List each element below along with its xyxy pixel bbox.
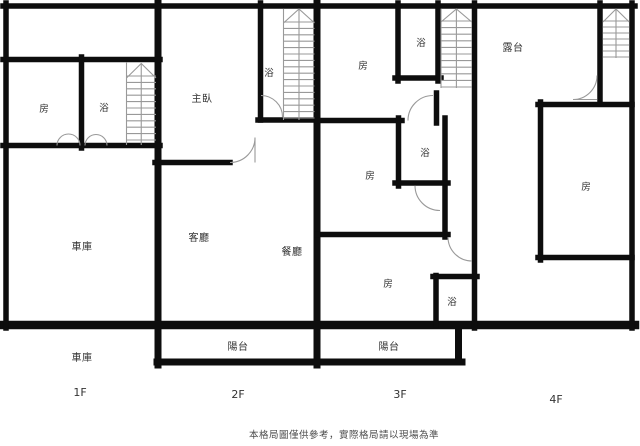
room-label-3f-room2: 房 [365,170,375,182]
room-label-2f-living: 客廳 [189,231,210,244]
inner-walls-1f [3,57,160,148]
floor-plan-drawing: 房 浴 車庫 主臥 浴 客廳 餐廳 陽台 房 浴 房 浴 房 浴 陽台 露台 房… [0,0,640,446]
door-arc [448,237,472,261]
room-label-3f-room1: 房 [358,60,368,72]
room-label-4f-room: 房 [581,181,591,193]
door-arc [261,96,283,118]
floor-plan: 房 浴 車庫 主臥 浴 客廳 餐廳 陽台 房 浴 房 浴 房 浴 陽台 露台 房… [0,0,640,446]
disclaimer-text: 本格局圖僅供參考，實際格局請以現場為準 [249,429,439,441]
inner-walls-4f [538,3,632,260]
balcony-walls [157,327,462,362]
caption-2f: 2F [231,388,244,401]
inner-walls-2f [155,3,317,163]
room-label-3f-bath2: 浴 [420,148,430,159]
door-arc [408,95,433,120]
room-label-3f-bath3: 浴 [447,297,457,308]
room-label-1f-bath: 浴 [99,103,109,114]
room-label-3f-bath1: 浴 [416,38,426,49]
room-label-2f-dining: 餐廳 [282,245,303,258]
caption-1f: 1F [73,386,86,399]
room-label-1f-garage: 車庫 [72,240,93,253]
room-label-3f-balcony: 陽台 [379,340,400,353]
room-label-2f-bath: 浴 [264,68,274,79]
room-label-1f-bedroom: 房 [39,103,49,115]
room-label-2f-balcony: 陽台 [228,340,249,353]
room-label-3f-room3: 房 [383,278,393,290]
stairs-icon-4f [603,9,629,58]
room-label-4f-terrace: 露台 [503,41,524,54]
stairs-icon-2f [284,9,315,120]
stairs-icon-1f [127,62,157,145]
door-arc [573,76,597,100]
door-arc [230,138,255,163]
door-arc [415,186,440,211]
caption-1f-garage: 車庫 [72,351,93,364]
inner-walls-3f [317,3,477,325]
room-label-2f-master: 主臥 [192,93,213,105]
caption-4f: 4F [549,393,562,406]
stairs-icon-3f [441,9,472,88]
caption-3f: 3F [393,388,406,401]
